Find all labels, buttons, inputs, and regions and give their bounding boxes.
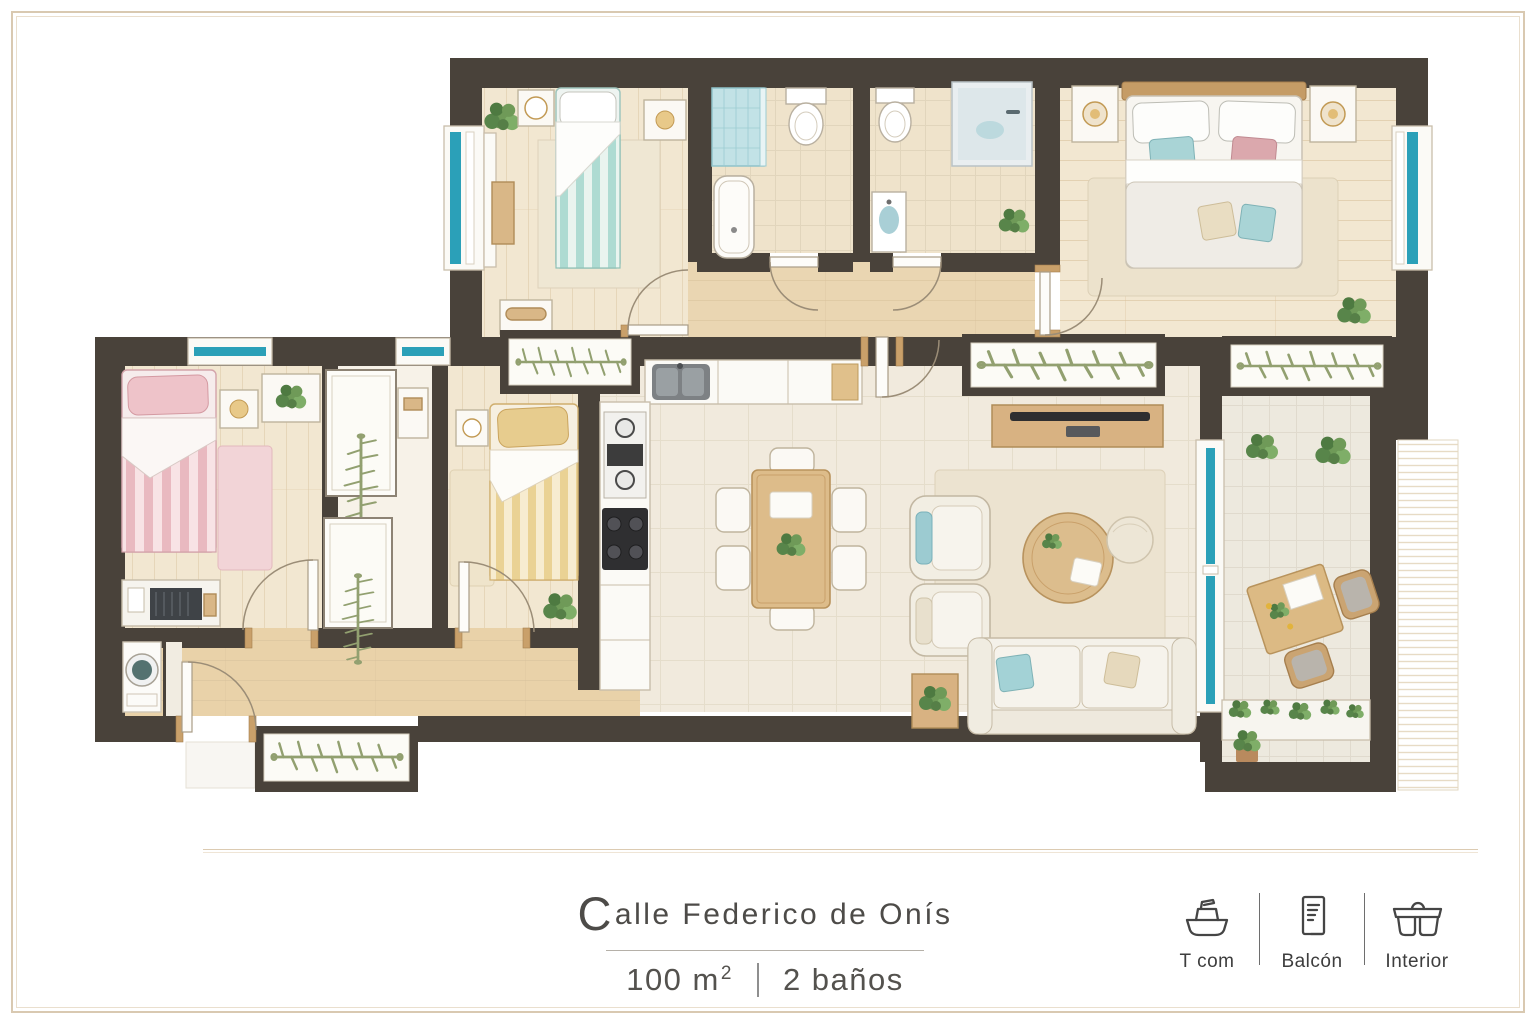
window-top-b — [396, 338, 450, 365]
nightstand-right — [1310, 86, 1356, 142]
dining-table — [752, 470, 830, 608]
street-underline — [606, 950, 924, 951]
master-bedroom — [1072, 82, 1371, 324]
floor-plan-poster: Calle Federico de Onís 100 m2 2 baños T … — [0, 0, 1536, 1024]
sink-counter — [645, 360, 862, 404]
appliance-column — [600, 402, 650, 690]
street-initial: C — [577, 887, 613, 940]
balcony-glass-door — [1196, 440, 1224, 712]
nightstand-left — [1072, 86, 1118, 142]
legend: T com Balcón Interior — [1168, 890, 1456, 973]
window-left — [444, 126, 496, 270]
listing-stats: 100 m2 2 baños — [465, 962, 1065, 998]
boat-icon — [1179, 890, 1235, 946]
double-bed — [1122, 82, 1306, 268]
single-bed-teal — [556, 88, 620, 268]
street-name: Calle Federico de Onís — [465, 886, 1065, 941]
side-table — [912, 674, 958, 728]
baths-value: 2 baños — [783, 962, 904, 998]
legend-separator — [1259, 893, 1260, 965]
section-divider — [203, 849, 1478, 853]
legend-separator — [1364, 893, 1365, 965]
sofa-glasses-icon — [1389, 890, 1445, 946]
legend-item-tcom: T com — [1168, 890, 1246, 973]
sofa — [968, 638, 1196, 734]
legend-label: Interior — [1385, 951, 1448, 973]
single-bed-pink — [122, 370, 216, 552]
washing-machine — [123, 642, 161, 712]
sink — [872, 192, 906, 252]
legend-label: T com — [1180, 951, 1235, 973]
balcony-door-icon — [1284, 890, 1340, 946]
window-top-a — [188, 338, 272, 365]
shower — [712, 88, 766, 166]
toilet — [876, 88, 914, 142]
tv-console — [992, 405, 1163, 447]
listing-info: Calle Federico de Onís 100 m2 2 baños — [465, 886, 1065, 998]
toilet — [786, 88, 826, 145]
stats-divider — [757, 963, 759, 997]
area-value: 100 m2 — [626, 962, 733, 998]
armchair-1 — [910, 496, 990, 580]
legend-label: Balcón — [1281, 951, 1342, 973]
shower-tray — [952, 82, 1032, 166]
window-right — [1392, 126, 1432, 270]
legend-item-balcon: Balcón — [1273, 890, 1351, 973]
street-rest: alle Federico de Onís — [615, 898, 953, 931]
legend-item-interior: Interior — [1378, 890, 1456, 973]
desk — [122, 580, 220, 626]
bathtub — [714, 176, 754, 258]
floor-plan-illustration — [0, 0, 1536, 1024]
exterior-wall-hatch — [1398, 440, 1458, 790]
coffee-table — [1023, 513, 1113, 603]
single-bed-yellow — [490, 404, 578, 580]
